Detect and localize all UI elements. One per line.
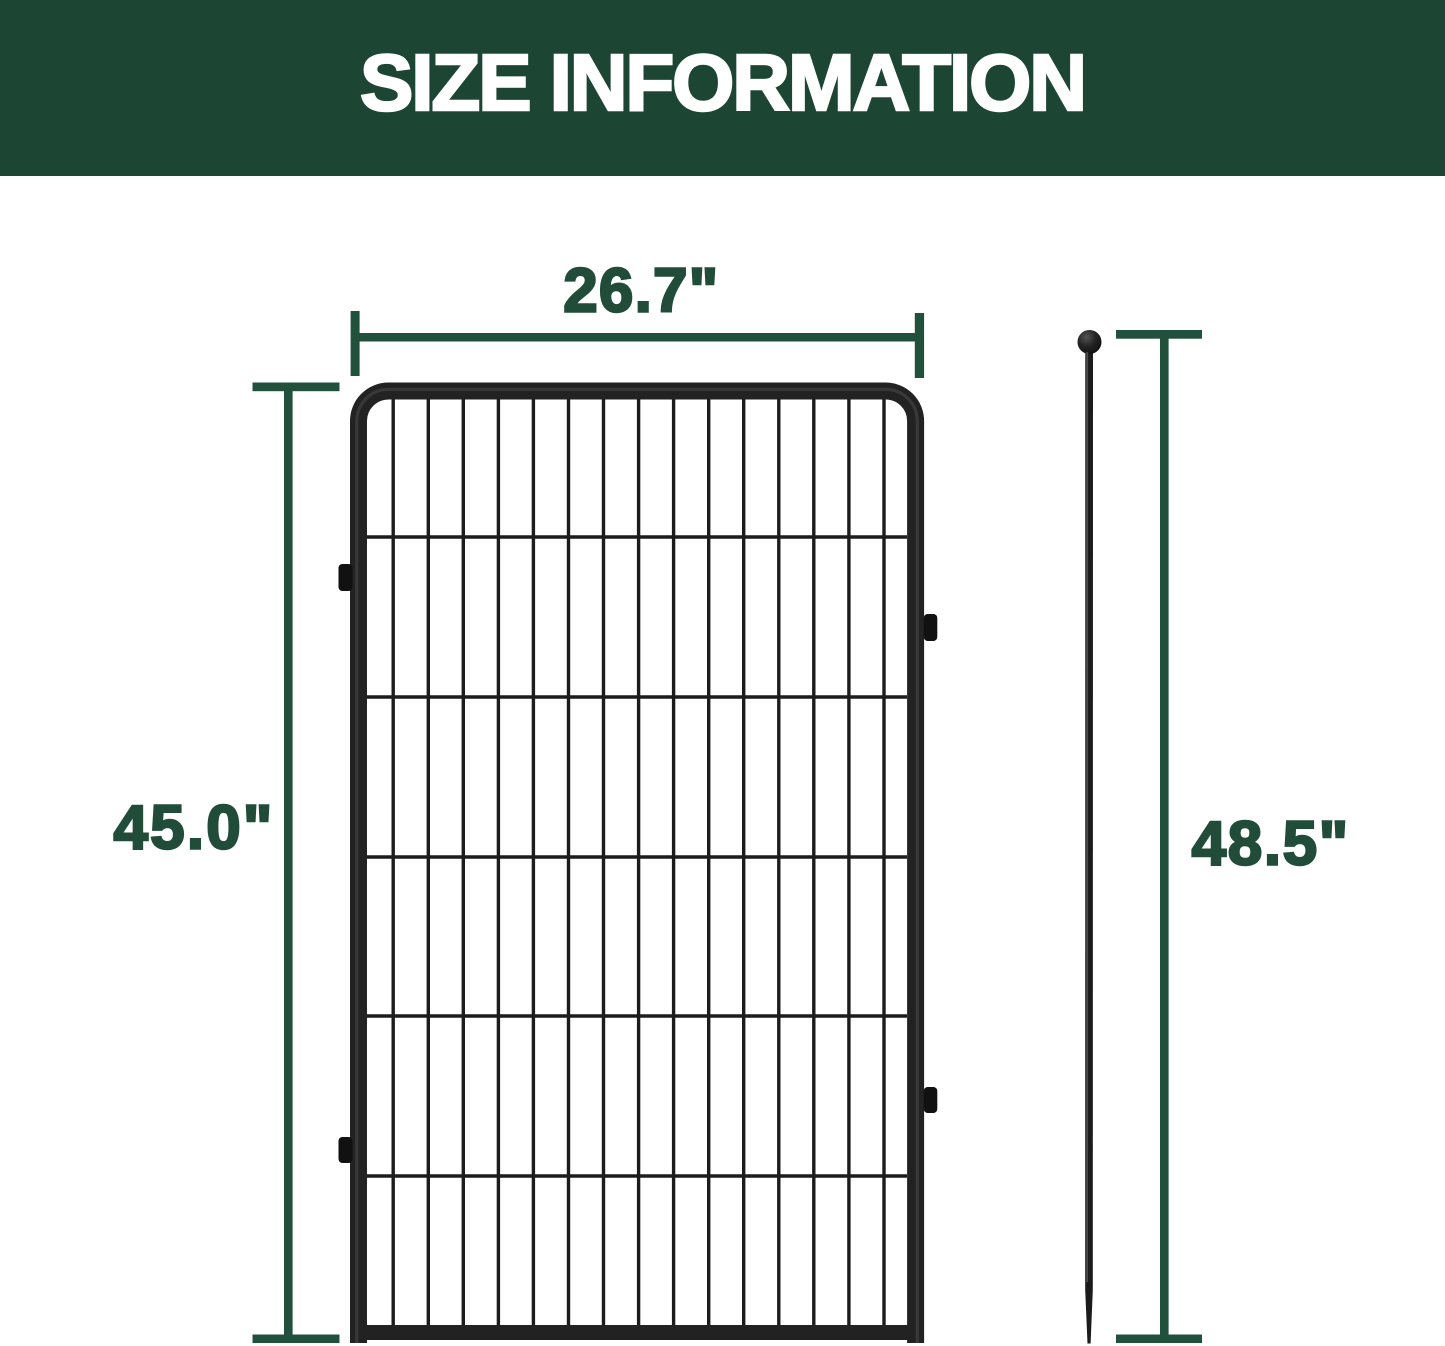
svg-text:26.7": 26.7" — [563, 257, 719, 326]
svg-text:45.0": 45.0" — [113, 794, 274, 863]
svg-text:48.5": 48.5" — [1192, 810, 1350, 879]
